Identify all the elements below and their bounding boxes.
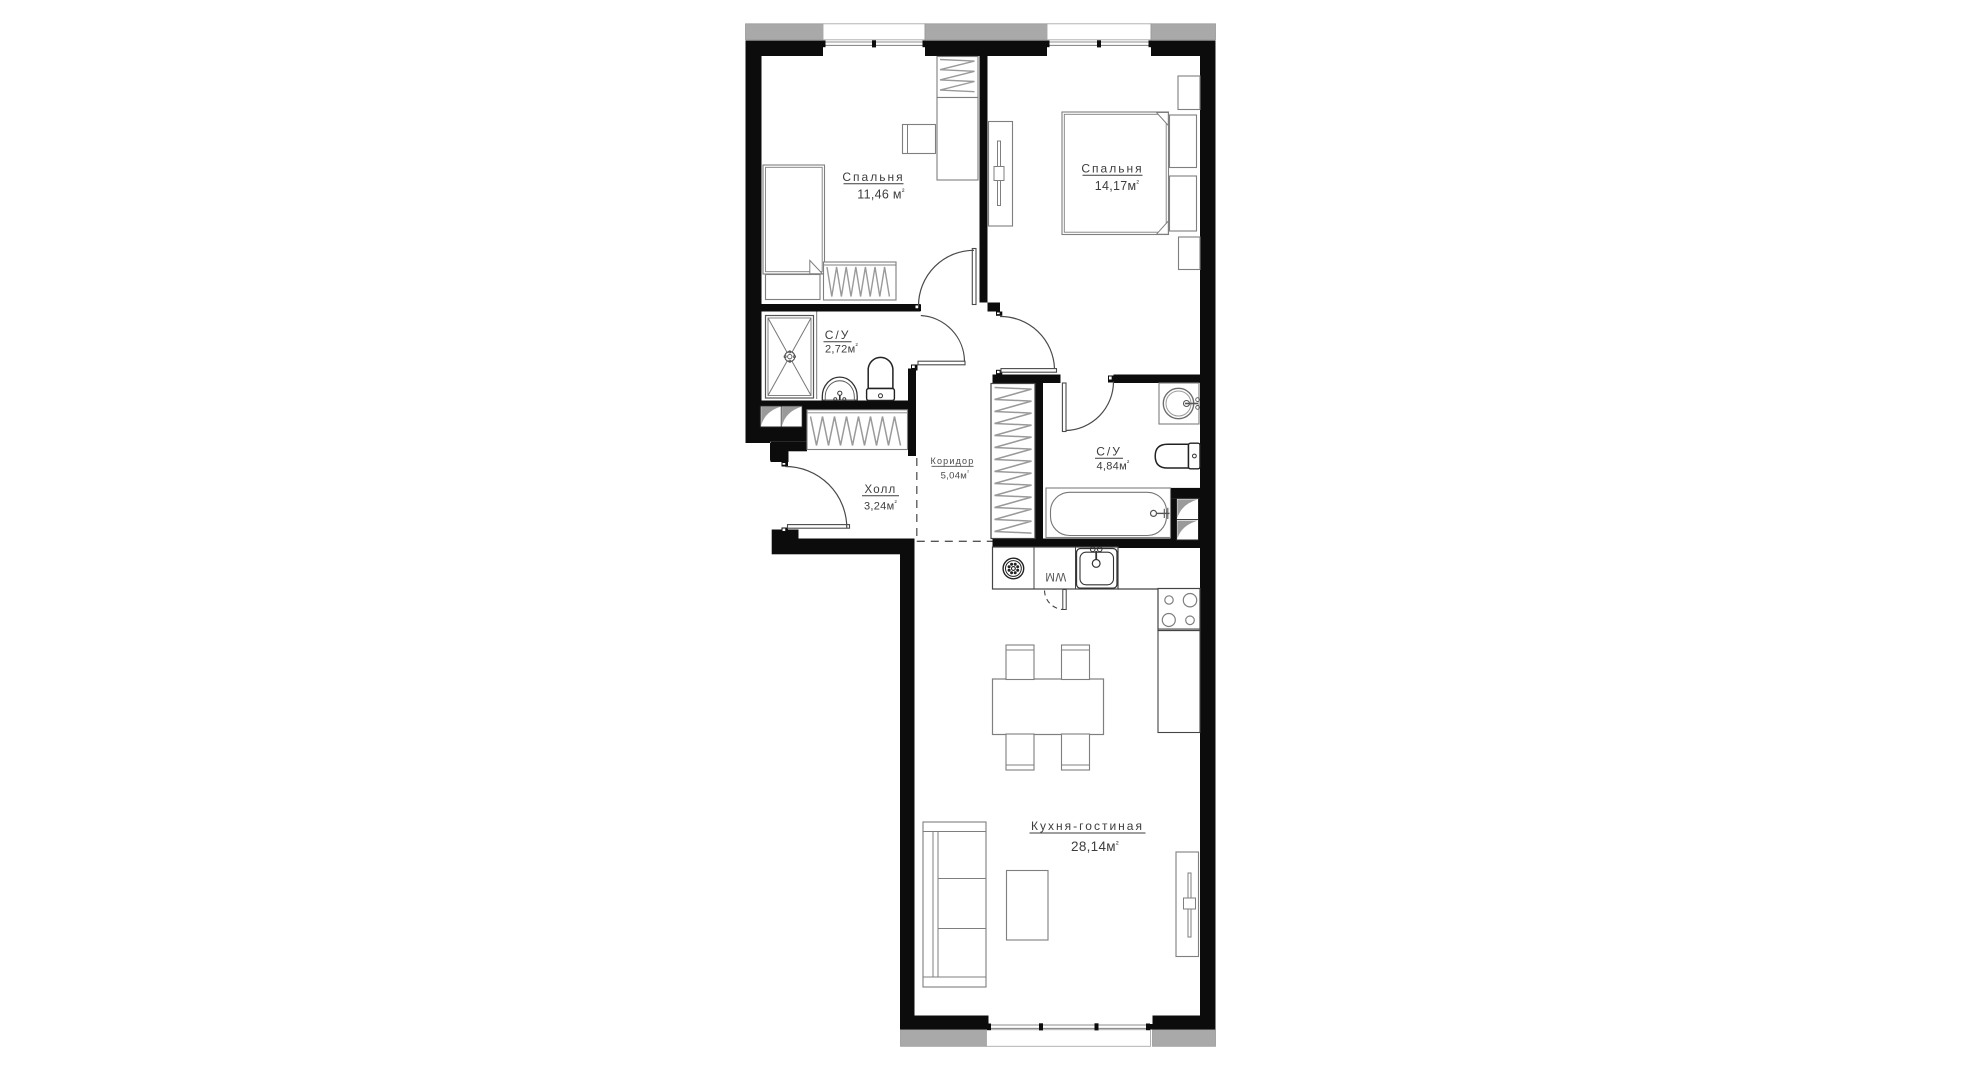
svg-text:Спальня: Спальня xyxy=(842,170,904,184)
svg-text:3,24м²: 3,24м² xyxy=(864,500,897,513)
svg-text:14,17м²: 14,17м² xyxy=(1095,179,1140,194)
svg-text:28,14м²: 28,14м² xyxy=(1071,839,1119,855)
svg-text:11,46 м²: 11,46 м² xyxy=(857,187,905,202)
svg-text:5,04м²: 5,04м² xyxy=(941,470,970,482)
svg-text:WM: WM xyxy=(1045,570,1066,582)
svg-text:2,72м²: 2,72м² xyxy=(825,343,858,356)
svg-text:Коридор: Коридор xyxy=(931,456,975,466)
svg-text:С/У: С/У xyxy=(825,328,851,342)
svg-text:Холл: Холл xyxy=(865,484,897,496)
svg-text:Спальня: Спальня xyxy=(1081,162,1143,176)
svg-text:Кухня-гостиная: Кухня-гостиная xyxy=(1031,819,1144,833)
svg-text:С/У: С/У xyxy=(1096,445,1122,459)
svg-text:4,84м²: 4,84м² xyxy=(1096,460,1129,473)
